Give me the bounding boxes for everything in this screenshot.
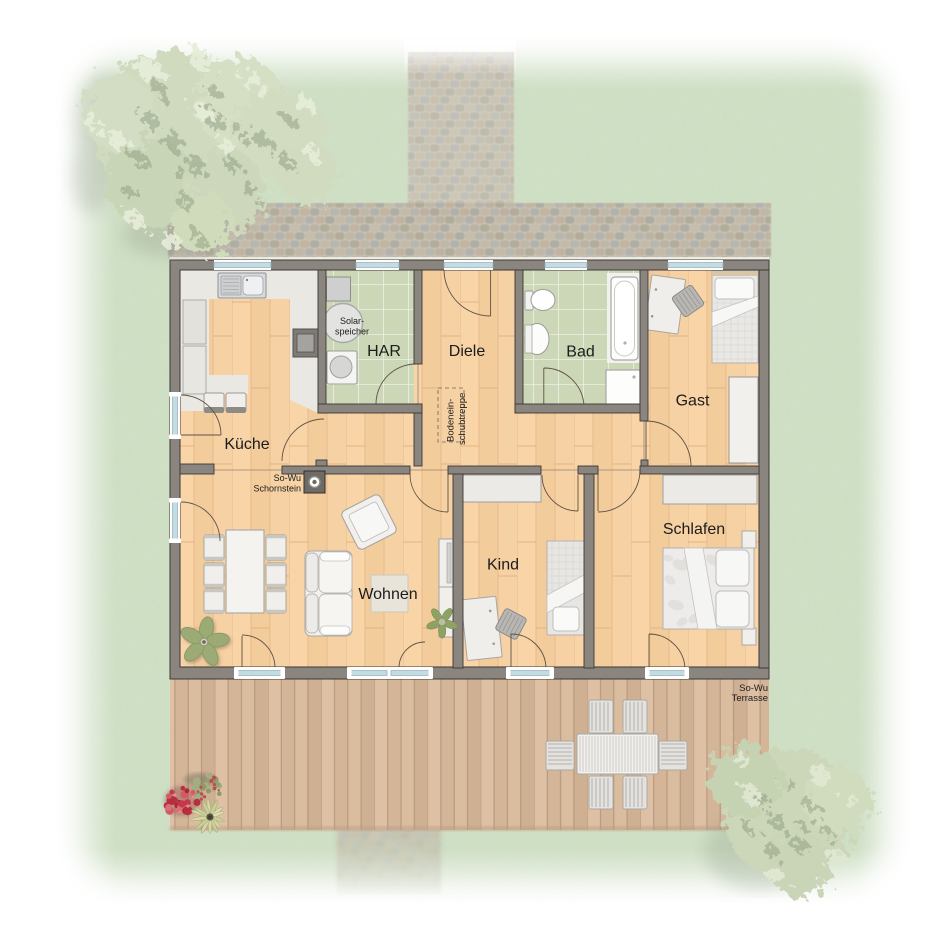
svg-text:Kind: Kind	[487, 557, 519, 574]
svg-text:So-Wu: So-Wu	[274, 473, 301, 483]
svg-text:Küche: Küche	[224, 436, 269, 453]
svg-text:Terrasse: Terrasse	[732, 693, 768, 704]
svg-text:Schornstein: Schornstein	[253, 484, 301, 494]
svg-text:HAR: HAR	[367, 343, 401, 360]
svg-text:Wohnen: Wohnen	[358, 586, 417, 603]
svg-text:Bad: Bad	[566, 344, 594, 361]
svg-text:Bodenein-: Bodenein-	[446, 399, 457, 442]
svg-text:Gast: Gast	[676, 393, 710, 410]
svg-text:speicher: speicher	[335, 327, 369, 337]
svg-text:Solar-: Solar-	[340, 316, 364, 326]
svg-text:schubtreppe: schubtreppe	[457, 393, 468, 445]
svg-text:Schlafen: Schlafen	[663, 521, 725, 538]
svg-text:Diele: Diele	[449, 343, 486, 360]
